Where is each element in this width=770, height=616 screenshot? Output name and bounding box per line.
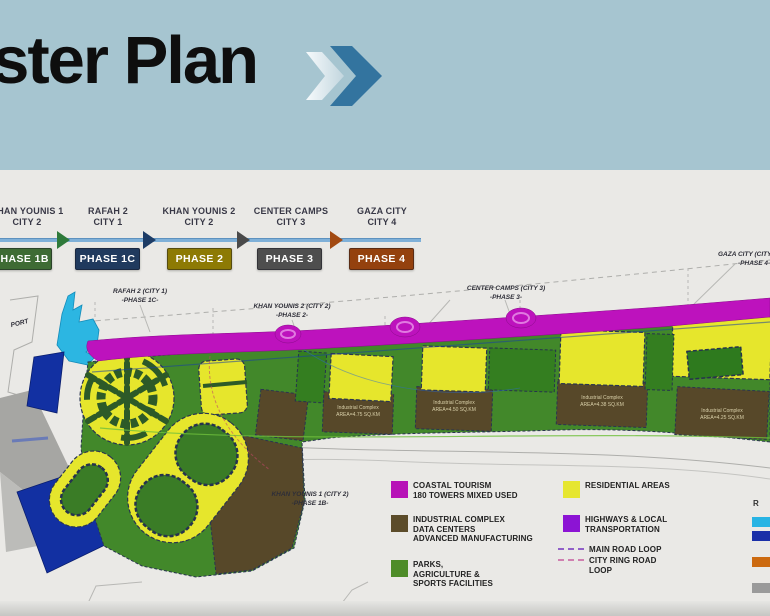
legend-highways: HIGHWAYS & LOCAL TRANSPORTATION [563, 515, 667, 534]
parks-swatch [391, 560, 408, 577]
map-label-center-camps: CENTER CAMPS (CITY 3) [467, 285, 545, 292]
svg-text:AREA=4.25 SQ.KM: AREA=4.25 SQ.KM [700, 415, 744, 421]
ring-road-dash-swatch [558, 559, 584, 561]
legend-parks: PARKS, AGRICULTURE & SPORTS FACILITIES [391, 560, 493, 589]
svg-text:AREA=4.50 SQ.KM: AREA=4.50 SQ.KM [432, 407, 476, 413]
map-label-port: PORT [10, 318, 30, 329]
highways-swatch [563, 515, 580, 532]
map-label-rafah: RAFAH 2 (CITY 1) [113, 288, 167, 295]
svg-text:-PHASE 1B-: -PHASE 1B- [292, 500, 329, 507]
svg-text:Industrial Complex: Industrial Complex [337, 405, 379, 411]
right-legend-swatch-orange [752, 557, 770, 567]
svg-text:AREA=4.75 SQ.KM: AREA=4.75 SQ.KM [336, 412, 380, 418]
main-road-dash-swatch [558, 548, 584, 550]
right-legend-swatch-cyan [752, 517, 770, 527]
blue-zone-upper [27, 352, 64, 413]
legend-industrial: INDUSTRIAL COMPLEX DATA CENTERS ADVANCED… [391, 515, 533, 544]
svg-text:Industrial Complex: Industrial Complex [433, 400, 475, 406]
right-legend-swatch-gray [752, 583, 770, 593]
map-label-khan-younis-2: KHAN YOUNIS 2 (CITY 2) [253, 303, 330, 310]
master-plan-slide: Master Plan KHAN YOUNIS 1 CITY 2 RAFAH 2… [0, 0, 770, 616]
svg-text:AREA=4.38 SQ.KM: AREA=4.38 SQ.KM [580, 402, 624, 408]
legend-residential: RESIDENTIAL AREAS [563, 481, 670, 498]
legend-city-ring-road: CITY RING ROAD LOOP [558, 556, 656, 575]
right-legend-partial-title: R [753, 499, 759, 508]
svg-text:-PHASE 2-: -PHASE 2- [276, 312, 308, 319]
map-label-gaza-city: GAZA CITY (CITY 4) [718, 251, 770, 258]
bottom-shadow-strip [0, 601, 770, 616]
right-legend-swatch-navy [752, 531, 770, 541]
svg-text:-PHASE 4-: -PHASE 4- [738, 260, 770, 267]
residential-swatch [563, 481, 580, 498]
svg-text:Industrial Complex: Industrial Complex [581, 395, 623, 401]
industrial-swatch [391, 515, 408, 532]
legend-main-road-loop: MAIN ROAD LOOP [558, 545, 662, 555]
map-label-khan-younis-1: KHAN YOUNIS 1 (CITY 2) [271, 491, 348, 498]
legend-coastal-tourism: COASTAL TOURISM 180 TOWERS MIXED USED [391, 481, 518, 500]
coastal-tourism-swatch [391, 481, 408, 498]
svg-text:Industrial Complex: Industrial Complex [701, 408, 743, 414]
svg-text:-PHASE 3-: -PHASE 3- [490, 294, 522, 301]
svg-text:-PHASE 1C-: -PHASE 1C- [122, 297, 159, 304]
